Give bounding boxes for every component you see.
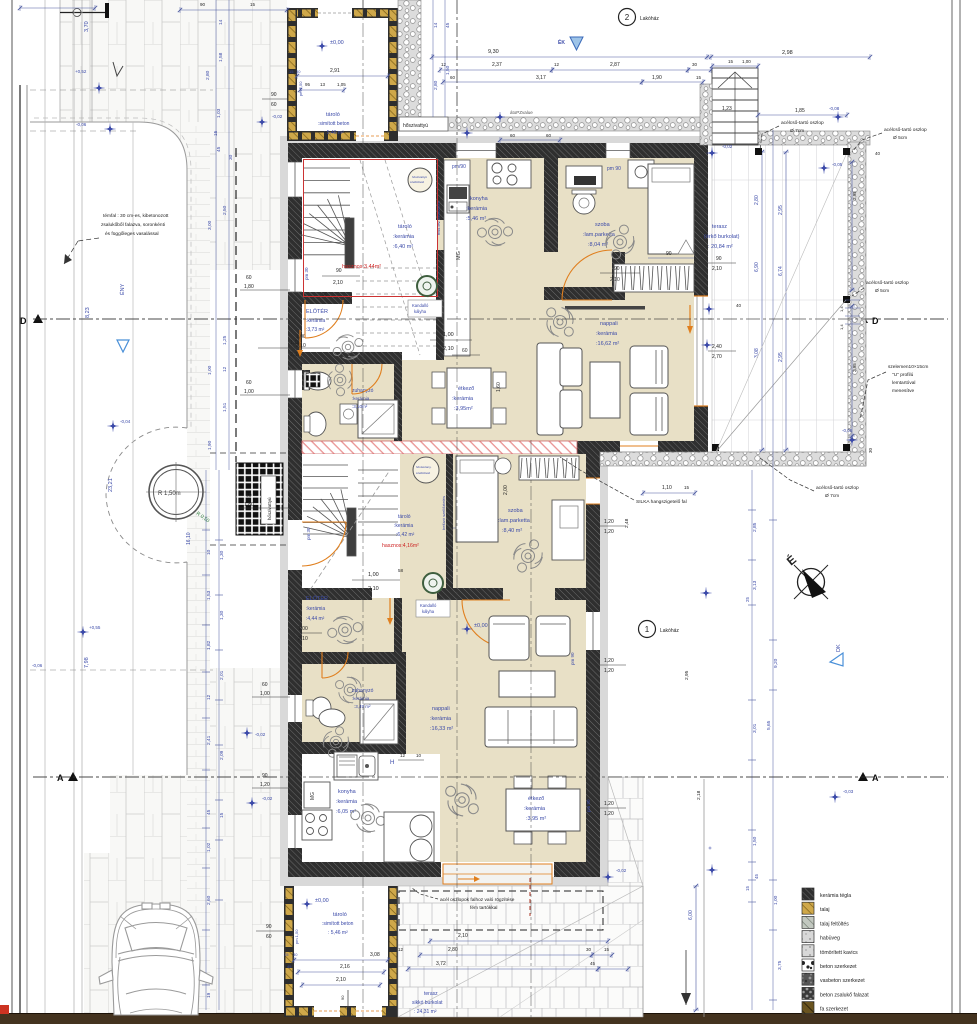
svg-text:befúvó szellőztetés: befúvó szellőztetés — [441, 496, 446, 530]
svg-text:tároló: tároló — [398, 224, 412, 230]
svg-text:-0,02: -0,02 — [262, 796, 273, 801]
svg-text:terasz: terasz — [424, 991, 438, 997]
svg-text:12: 12 — [222, 366, 228, 372]
svg-text::6,40 m²: :6,40 m² — [393, 244, 413, 250]
svg-text:szelemen10×15cm: szelemen10×15cm — [888, 364, 928, 370]
svg-text::lam.parketta: :lam.parketta — [498, 518, 531, 524]
svg-text:2,10: 2,10 — [298, 636, 308, 642]
svg-text:2,50: 2,50 — [222, 205, 228, 215]
svg-text:60: 60 — [271, 102, 277, 108]
svg-text:15: 15 — [696, 75, 702, 80]
svg-text:19: 19 — [206, 992, 212, 998]
svg-text:hőszivattyú: hőszivattyú — [267, 497, 272, 520]
svg-text:1,51: 1,51 — [222, 402, 228, 412]
svg-text::8,40 m²: :8,40 m² — [502, 528, 522, 534]
svg-text:2,18: 2,18 — [696, 790, 702, 800]
svg-text:Kandalló: Kandalló — [420, 603, 437, 608]
svg-text:90: 90 — [666, 251, 672, 257]
svg-text::6,42 m²: :6,42 m² — [396, 532, 415, 538]
svg-text:MG: MG — [310, 792, 316, 800]
svg-text:tároló: tároló — [333, 912, 347, 918]
svg-text:2,85: 2,85 — [752, 522, 758, 532]
svg-text:60: 60 — [246, 275, 252, 281]
svg-text:1,85: 1,85 — [795, 108, 805, 114]
svg-text:Kandalló: Kandalló — [412, 303, 429, 308]
svg-text:15: 15 — [684, 485, 690, 490]
svg-text:2,95: 2,95 — [852, 363, 857, 372]
svg-text:"U" profilú: "U" profilú — [892, 372, 914, 378]
svg-text:1,23: 1,23 — [722, 106, 732, 112]
svg-text:pm 90: pm 90 — [570, 652, 575, 665]
svg-text::kerámia: :kerámia — [352, 396, 370, 401]
svg-text::kerámia: :kerámia — [393, 234, 415, 240]
svg-text:45: 45 — [754, 873, 759, 879]
svg-text:1,00: 1,00 — [207, 365, 213, 375]
svg-text:1,82: 1,82 — [206, 640, 212, 650]
svg-text:H: H — [390, 760, 394, 766]
svg-text:pm 30: pm 30 — [306, 527, 311, 540]
svg-text:2,95: 2,95 — [778, 352, 784, 362]
svg-text:2,87: 2,87 — [610, 62, 620, 68]
svg-text:terasz: terasz — [712, 224, 727, 230]
svg-text:14: 14 — [218, 19, 224, 25]
svg-text:-0,08: -0,08 — [829, 106, 840, 111]
svg-text:zsalukőből falazva, soronkénti: zsalukőből falazva, soronkénti — [101, 222, 165, 228]
svg-text:3,70: 3,70 — [84, 21, 90, 32]
svg-text:2,10: 2,10 — [458, 933, 468, 939]
svg-text:1,53: 1,53 — [206, 590, 212, 600]
svg-text:30: 30 — [692, 62, 698, 67]
svg-text:-0,05: -0,05 — [832, 162, 843, 167]
svg-text:-0,06: -0,06 — [76, 122, 87, 127]
svg-text::16,62 m²: :16,62 m² — [596, 341, 619, 347]
svg-text:15: 15 — [284, 952, 289, 957]
svg-text:3,00: 3,00 — [207, 220, 213, 230]
svg-text:-0,02: -0,02 — [722, 144, 733, 149]
svg-text::16,33 m²: :16,33 m² — [430, 726, 453, 732]
svg-text:nappali: nappali — [600, 321, 618, 327]
svg-text:10: 10 — [206, 549, 212, 555]
svg-text:acélcső-tartó oszlop: acélcső-tartó oszlop — [866, 280, 909, 286]
svg-text:60: 60 — [266, 934, 272, 940]
svg-text:1,25: 1,25 — [222, 335, 228, 345]
svg-text:2,09: 2,09 — [219, 750, 225, 760]
svg-text:2,48: 2,48 — [624, 518, 630, 528]
svg-text:hasznos:3,44m²: hasznos:3,44m² — [342, 264, 381, 270]
svg-text:30: 30 — [586, 947, 592, 952]
svg-text:2,10: 2,10 — [336, 977, 346, 983]
svg-text:konyha: konyha — [338, 789, 357, 795]
svg-text:60: 60 — [246, 380, 252, 386]
svg-text:+0,52: +0,52 — [75, 69, 87, 74]
svg-text::simított beton: :simított beton — [322, 921, 354, 927]
svg-text::kerámia: :kerámia — [352, 696, 370, 701]
svg-text:1,00: 1,00 — [773, 895, 779, 905]
svg-text:90: 90 — [716, 256, 722, 262]
svg-text:14: 14 — [433, 22, 439, 28]
svg-text:1,00: 1,00 — [368, 572, 379, 578]
svg-text:1,00: 1,00 — [742, 59, 751, 64]
svg-text::kerámia: :kerámia — [452, 396, 474, 402]
svg-text:3,01: 3,01 — [752, 723, 758, 733]
svg-text:étkező: étkező — [528, 796, 544, 802]
svg-text:fém tartókkal: fém tartókkal — [470, 905, 497, 911]
svg-text:1,20: 1,20 — [604, 658, 614, 664]
svg-text:acél oszlopok falhoz való rögz: acél oszlopok falhoz való rögzítése — [440, 897, 515, 903]
svg-text:2,41: 2,41 — [206, 735, 212, 745]
svg-text:1,20: 1,20 — [260, 782, 270, 788]
svg-text:60: 60 — [262, 682, 268, 688]
svg-text:kerámia tégla: kerámia tégla — [820, 893, 851, 899]
svg-text:sikkó burkolat: sikkó burkolat — [412, 1000, 443, 1006]
svg-text::3,10m²: :3,10m² — [352, 404, 368, 409]
svg-text:±0,00: ±0,00 — [315, 898, 329, 904]
svg-text:-0,02: -0,02 — [272, 114, 283, 119]
svg-text:tároló: tároló — [398, 514, 411, 520]
svg-text:D: D — [20, 316, 27, 326]
svg-text:: 5,46 m²: : 5,46 m² — [324, 130, 344, 136]
svg-text:A: A — [57, 773, 64, 783]
svg-text:6,00: 6,00 — [688, 910, 694, 920]
svg-text:2,10: 2,10 — [443, 346, 454, 352]
svg-text:témfal : 30 cm-es, kibetonozot: témfal : 30 cm-es, kibetonozott — [103, 213, 169, 219]
svg-text:60: 60 — [546, 133, 552, 138]
svg-text:1,90: 1,90 — [207, 440, 213, 450]
svg-text:és függőleges vasalással: és függőleges vasalással — [105, 231, 159, 237]
svg-text:10: 10 — [416, 753, 422, 758]
svg-text:-0,05: -0,05 — [842, 428, 853, 433]
svg-text:40: 40 — [875, 151, 881, 156]
svg-text:-0,04: -0,04 — [120, 419, 131, 424]
svg-text:12: 12 — [398, 947, 404, 952]
svg-text:95: 95 — [305, 82, 311, 87]
svg-text:1,20: 1,20 — [604, 668, 614, 674]
svg-text:pm 30: pm 30 — [304, 267, 309, 280]
svg-text:30: 30 — [296, 69, 301, 74]
svg-text:2,16: 2,16 — [340, 964, 350, 970]
svg-text:2,80: 2,80 — [448, 947, 458, 953]
svg-text:45: 45 — [590, 961, 596, 966]
svg-text:8,23: 8,23 — [85, 307, 91, 318]
svg-text:pm 90: pm 90 — [586, 799, 591, 812]
svg-text:12: 12 — [400, 753, 406, 758]
svg-text:40: 40 — [736, 303, 742, 308]
svg-text:ÉK: ÉK — [558, 38, 565, 46]
svg-text:90: 90 — [262, 773, 268, 779]
svg-text:1,4: 1,4 — [839, 324, 844, 330]
svg-text:90: 90 — [336, 268, 342, 274]
svg-text:2,98: 2,98 — [782, 50, 793, 56]
svg-text:Lakóház: Lakóház — [640, 16, 659, 22]
svg-text:Ø 7cm: Ø 7cm — [790, 128, 804, 134]
svg-text:A: A — [872, 773, 879, 783]
svg-text:beton szerkezet: beton szerkezet — [820, 964, 857, 970]
svg-text:: 20,84 m²: : 20,84 m² — [708, 244, 733, 250]
svg-text:menesítve: menesítve — [892, 388, 914, 394]
svg-text:12: 12 — [554, 62, 560, 67]
svg-text:1: 1 — [645, 625, 650, 634]
svg-text:acélcső-tartó oszlop: acélcső-tartó oszlop — [884, 127, 927, 133]
svg-text:90: 90 — [340, 995, 345, 1000]
svg-text:45: 45 — [216, 146, 222, 152]
svg-text:1,30: 1,30 — [219, 610, 225, 620]
svg-text:acélcső-tartó oszlop: acélcső-tartó oszlop — [816, 485, 859, 491]
svg-text:1,50: 1,50 — [752, 836, 758, 846]
svg-text:1,00: 1,00 — [298, 626, 308, 632]
svg-text:talaj: talaj — [820, 907, 830, 913]
svg-text:szellőztető: szellőztető — [410, 180, 425, 184]
svg-text:1,58: 1,58 — [218, 52, 224, 62]
svg-text:DK: DK — [836, 644, 842, 652]
svg-text:Lakóház: Lakóház — [660, 628, 679, 634]
svg-text:1,02: 1,02 — [206, 842, 212, 852]
svg-text:ELŐTÉR: ELŐTÉR — [306, 308, 328, 315]
svg-text:friss lev. bevezetés: friss lev. bevezetés — [436, 201, 441, 235]
svg-text:12: 12 — [206, 694, 212, 700]
svg-text::kerámia: :kerámia — [394, 523, 413, 529]
svg-text:+0,55: +0,55 — [89, 625, 101, 630]
svg-text:-0,06: -0,06 — [32, 663, 43, 668]
svg-text:2,01: 2,01 — [219, 670, 225, 680]
svg-text::kerámia: :kerámia — [336, 799, 358, 805]
svg-text:lemtartóval: lemtartóval — [892, 380, 915, 386]
svg-text:2,37: 2,37 — [492, 62, 502, 68]
svg-text:konyha: konyha — [470, 196, 489, 202]
svg-text:talaj feltöltés: talaj feltöltés — [820, 921, 849, 927]
svg-text:2,70: 2,70 — [712, 354, 722, 360]
svg-text:Ø 5cm: Ø 5cm — [893, 135, 907, 141]
svg-text:45: 45 — [445, 22, 451, 28]
svg-text:96: 96 — [322, 292, 328, 298]
svg-text:60: 60 — [510, 133, 516, 138]
svg-text:45: 45 — [206, 809, 212, 815]
svg-text:90: 90 — [200, 2, 206, 7]
svg-text:pm 1,50: pm 1,50 — [294, 929, 299, 944]
svg-text:tömörített kavics: tömörített kavics — [820, 950, 858, 956]
svg-text:1,4: 1,4 — [839, 306, 844, 312]
svg-text:1,60: 1,60 — [496, 382, 502, 392]
svg-text:2,40: 2,40 — [712, 344, 722, 350]
svg-text:1,05: 1,05 — [337, 82, 346, 87]
svg-text:30: 30 — [293, 952, 298, 957]
svg-text:1,20: 1,20 — [604, 529, 614, 535]
svg-text:-0,02: -0,02 — [616, 868, 627, 873]
svg-text:90: 90 — [614, 266, 620, 272]
svg-text::kerámia: :kerámia — [596, 331, 618, 337]
svg-text:15: 15 — [604, 947, 610, 952]
svg-text:23,21: 23,21 — [108, 478, 114, 492]
svg-text:hővisszany.: hővisszany. — [416, 465, 432, 469]
svg-text::5,46 m²: :5,46 m² — [466, 216, 486, 222]
svg-text:tároló: tároló — [326, 112, 340, 118]
svg-text:1,10: 1,10 — [662, 485, 672, 491]
svg-text:2,00: 2,00 — [503, 485, 509, 495]
svg-text:45: 45 — [287, 964, 292, 969]
svg-text:±0,00: ±0,00 — [330, 40, 344, 46]
svg-text::simított beton: :simított beton — [318, 121, 350, 127]
svg-text:15: 15 — [219, 812, 225, 818]
svg-text:2,80: 2,80 — [433, 80, 439, 90]
svg-text:1,20: 1,20 — [604, 801, 614, 807]
svg-text::kerámia: :kerámia — [524, 806, 546, 812]
svg-text:pm 1,50: pm 1,50 — [298, 81, 303, 96]
svg-text:étkező: étkező — [458, 386, 474, 392]
svg-text:ÉNY: ÉNY — [119, 283, 126, 295]
svg-text:-0,02: -0,02 — [255, 732, 266, 737]
svg-text::kerámia: :kerámia — [466, 206, 488, 212]
svg-text:2,91: 2,91 — [330, 68, 340, 74]
svg-text:habüveg: habüveg — [820, 936, 840, 942]
svg-text:átoPZvalue: átoPZvalue — [510, 110, 533, 115]
svg-text:7,98: 7,98 — [84, 657, 90, 668]
svg-text:2,10: 2,10 — [296, 343, 306, 349]
svg-text:1,90: 1,90 — [652, 75, 662, 81]
svg-text:2,95: 2,95 — [852, 191, 857, 200]
svg-text:hőszivattyú: hőszivattyú — [403, 123, 428, 129]
svg-text:9,20: 9,20 — [773, 658, 779, 668]
svg-text:2,80: 2,80 — [754, 195, 760, 205]
svg-text:2: 2 — [625, 13, 630, 22]
svg-text:5,65: 5,65 — [766, 720, 772, 730]
svg-text:: 5,46 m²: : 5,46 m² — [328, 930, 348, 936]
svg-text::4,44 m²: :4,44 m² — [306, 616, 325, 622]
svg-text:1,20: 1,20 — [604, 811, 614, 817]
svg-text:2,10: 2,10 — [333, 280, 343, 286]
svg-text::3,73 m²: :3,73 m² — [306, 327, 325, 333]
svg-text:15: 15 — [745, 885, 750, 891]
svg-text::3,95 m²: :3,95 m² — [526, 816, 546, 822]
svg-text:1,30: 1,30 — [219, 550, 225, 560]
svg-text:2,10: 2,10 — [610, 277, 620, 283]
svg-text:szoba: szoba — [595, 222, 611, 228]
svg-text::3,49 m²: :3,49 m² — [354, 704, 371, 709]
svg-text:: 24,31 m²: : 24,31 m² — [414, 1009, 437, 1015]
svg-text:2,95: 2,95 — [684, 670, 690, 680]
svg-text:2,95: 2,95 — [778, 205, 784, 215]
svg-text:1,00: 1,00 — [260, 691, 270, 697]
svg-text:1,00: 1,00 — [443, 332, 454, 338]
svg-text:16,10: 16,10 — [186, 532, 192, 545]
svg-text:kályha: kályha — [422, 609, 435, 614]
svg-text:58: 58 — [398, 568, 404, 573]
svg-text::kerámia: :kerámia — [306, 606, 325, 612]
svg-text:beton zsalukő falazat: beton zsalukő falazat — [820, 992, 869, 998]
svg-text:6,90: 6,90 — [754, 262, 760, 272]
svg-text:1,50: 1,50 — [445, 65, 451, 75]
svg-text:szellőztető: szellőztető — [416, 471, 431, 475]
svg-text:2,80: 2,80 — [205, 70, 211, 80]
svg-text:pm 90: pm 90 — [607, 166, 621, 172]
svg-text:1,80: 1,80 — [244, 284, 254, 290]
svg-text:6,74: 6,74 — [778, 266, 784, 276]
svg-text:60: 60 — [462, 348, 468, 354]
svg-text:25: 25 — [745, 596, 750, 602]
svg-text:SILKA hangszigetelő fal: SILKA hangszigetelő fal — [636, 499, 687, 505]
svg-text:60: 60 — [246, 493, 252, 499]
svg-text:15: 15 — [728, 59, 734, 64]
svg-text:15: 15 — [289, 69, 294, 74]
svg-text:1,20: 1,20 — [604, 519, 614, 525]
svg-text:kályha: kályha — [414, 309, 427, 314]
svg-text:3,17: 3,17 — [536, 75, 546, 81]
svg-text:vasbeton szerkezet: vasbeton szerkezet — [820, 978, 865, 984]
svg-text:-0,03: -0,03 — [843, 789, 854, 794]
svg-text:3,75: 3,75 — [777, 960, 783, 970]
svg-text:3,13: 3,13 — [752, 580, 758, 590]
svg-text:2,10: 2,10 — [368, 586, 379, 592]
svg-text:3,08: 3,08 — [370, 952, 380, 958]
svg-text:1,80: 1,80 — [244, 502, 254, 508]
svg-text:acélcső-tartó oszlop: acélcső-tartó oszlop — [781, 120, 824, 126]
svg-text:3,72: 3,72 — [436, 961, 446, 967]
svg-text:D: D — [872, 316, 879, 326]
svg-text:90: 90 — [266, 924, 272, 930]
svg-text:±0,00: ±0,00 — [474, 623, 488, 629]
svg-text:1,03: 1,03 — [216, 108, 222, 118]
svg-text:9,30: 9,30 — [488, 49, 499, 55]
svg-text:hasznos:4,16m²: hasznos:4,16m² — [382, 543, 419, 549]
svg-text:fa szerkezet: fa szerkezet — [820, 1007, 849, 1013]
svg-text:2,10: 2,10 — [712, 266, 722, 272]
svg-text:nappali: nappali — [432, 706, 450, 712]
svg-text:15: 15 — [250, 2, 256, 7]
svg-text:2,60: 2,60 — [206, 895, 212, 905]
svg-text:30: 30 — [868, 447, 873, 453]
svg-text:13: 13 — [320, 82, 326, 87]
svg-text:hőszivattyú: hőszivattyú — [412, 175, 427, 179]
svg-text::6,05 m²: :6,05 m² — [336, 809, 356, 815]
svg-text:90: 90 — [271, 92, 277, 98]
svg-text:Ø 5cm: Ø 5cm — [875, 288, 889, 294]
svg-text:ELŐTÉR: ELŐTÉR — [306, 595, 328, 602]
svg-text::kerámia: :kerámia — [430, 716, 452, 722]
svg-text:(érkő burkolat): (érkő burkolat) — [704, 234, 740, 240]
svg-text:1,00: 1,00 — [244, 389, 254, 395]
svg-text:pm/90: pm/90 — [452, 164, 466, 170]
svg-text:Ø 7cm: Ø 7cm — [825, 493, 839, 499]
svg-text:szoba: szoba — [508, 508, 524, 514]
